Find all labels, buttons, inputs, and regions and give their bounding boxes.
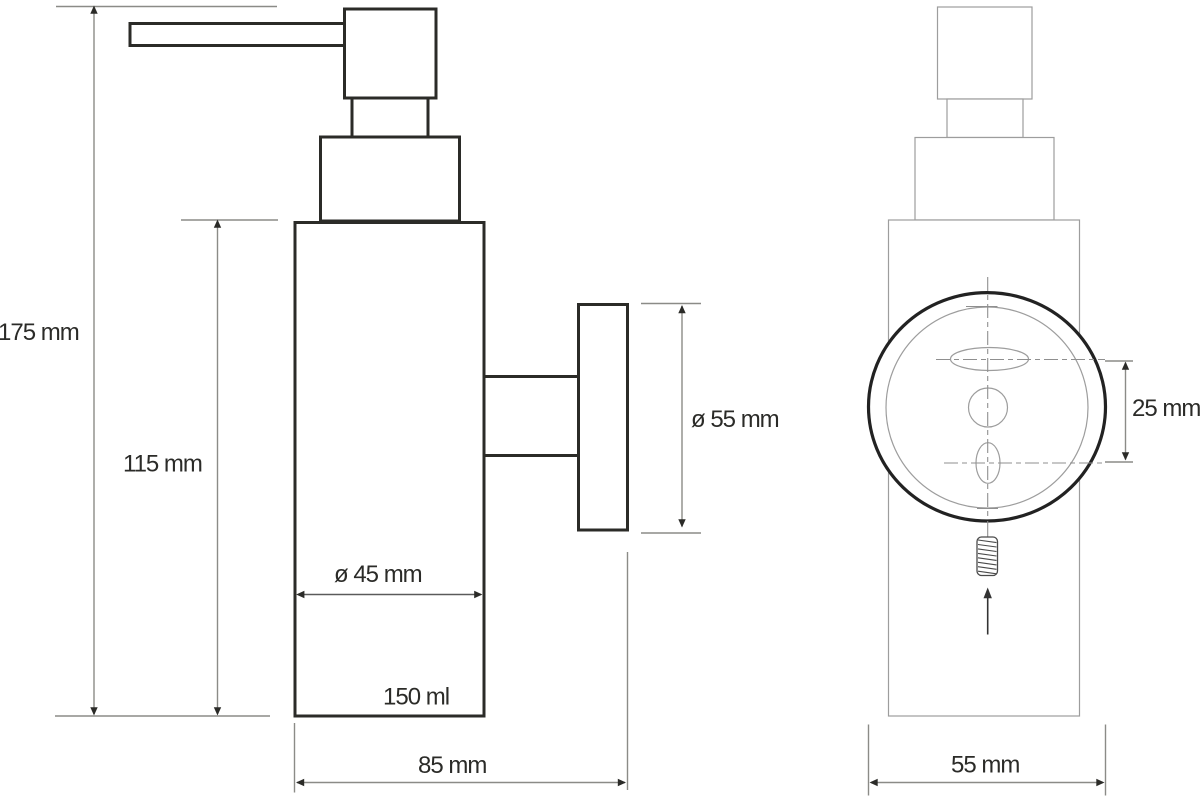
svg-text:85 mm: 85 mm xyxy=(418,752,486,779)
svg-text:ø 55 mm: ø 55 mm xyxy=(691,406,779,433)
svg-text:25 mm: 25 mm xyxy=(1132,395,1200,422)
svg-text:ø 45 mm: ø 45 mm xyxy=(334,561,422,588)
svg-text:55 mm: 55 mm xyxy=(951,752,1019,779)
svg-text:115 mm: 115 mm xyxy=(123,451,202,478)
svg-text:175 mm: 175 mm xyxy=(0,319,79,346)
svg-text:150 ml: 150 ml xyxy=(383,684,449,711)
